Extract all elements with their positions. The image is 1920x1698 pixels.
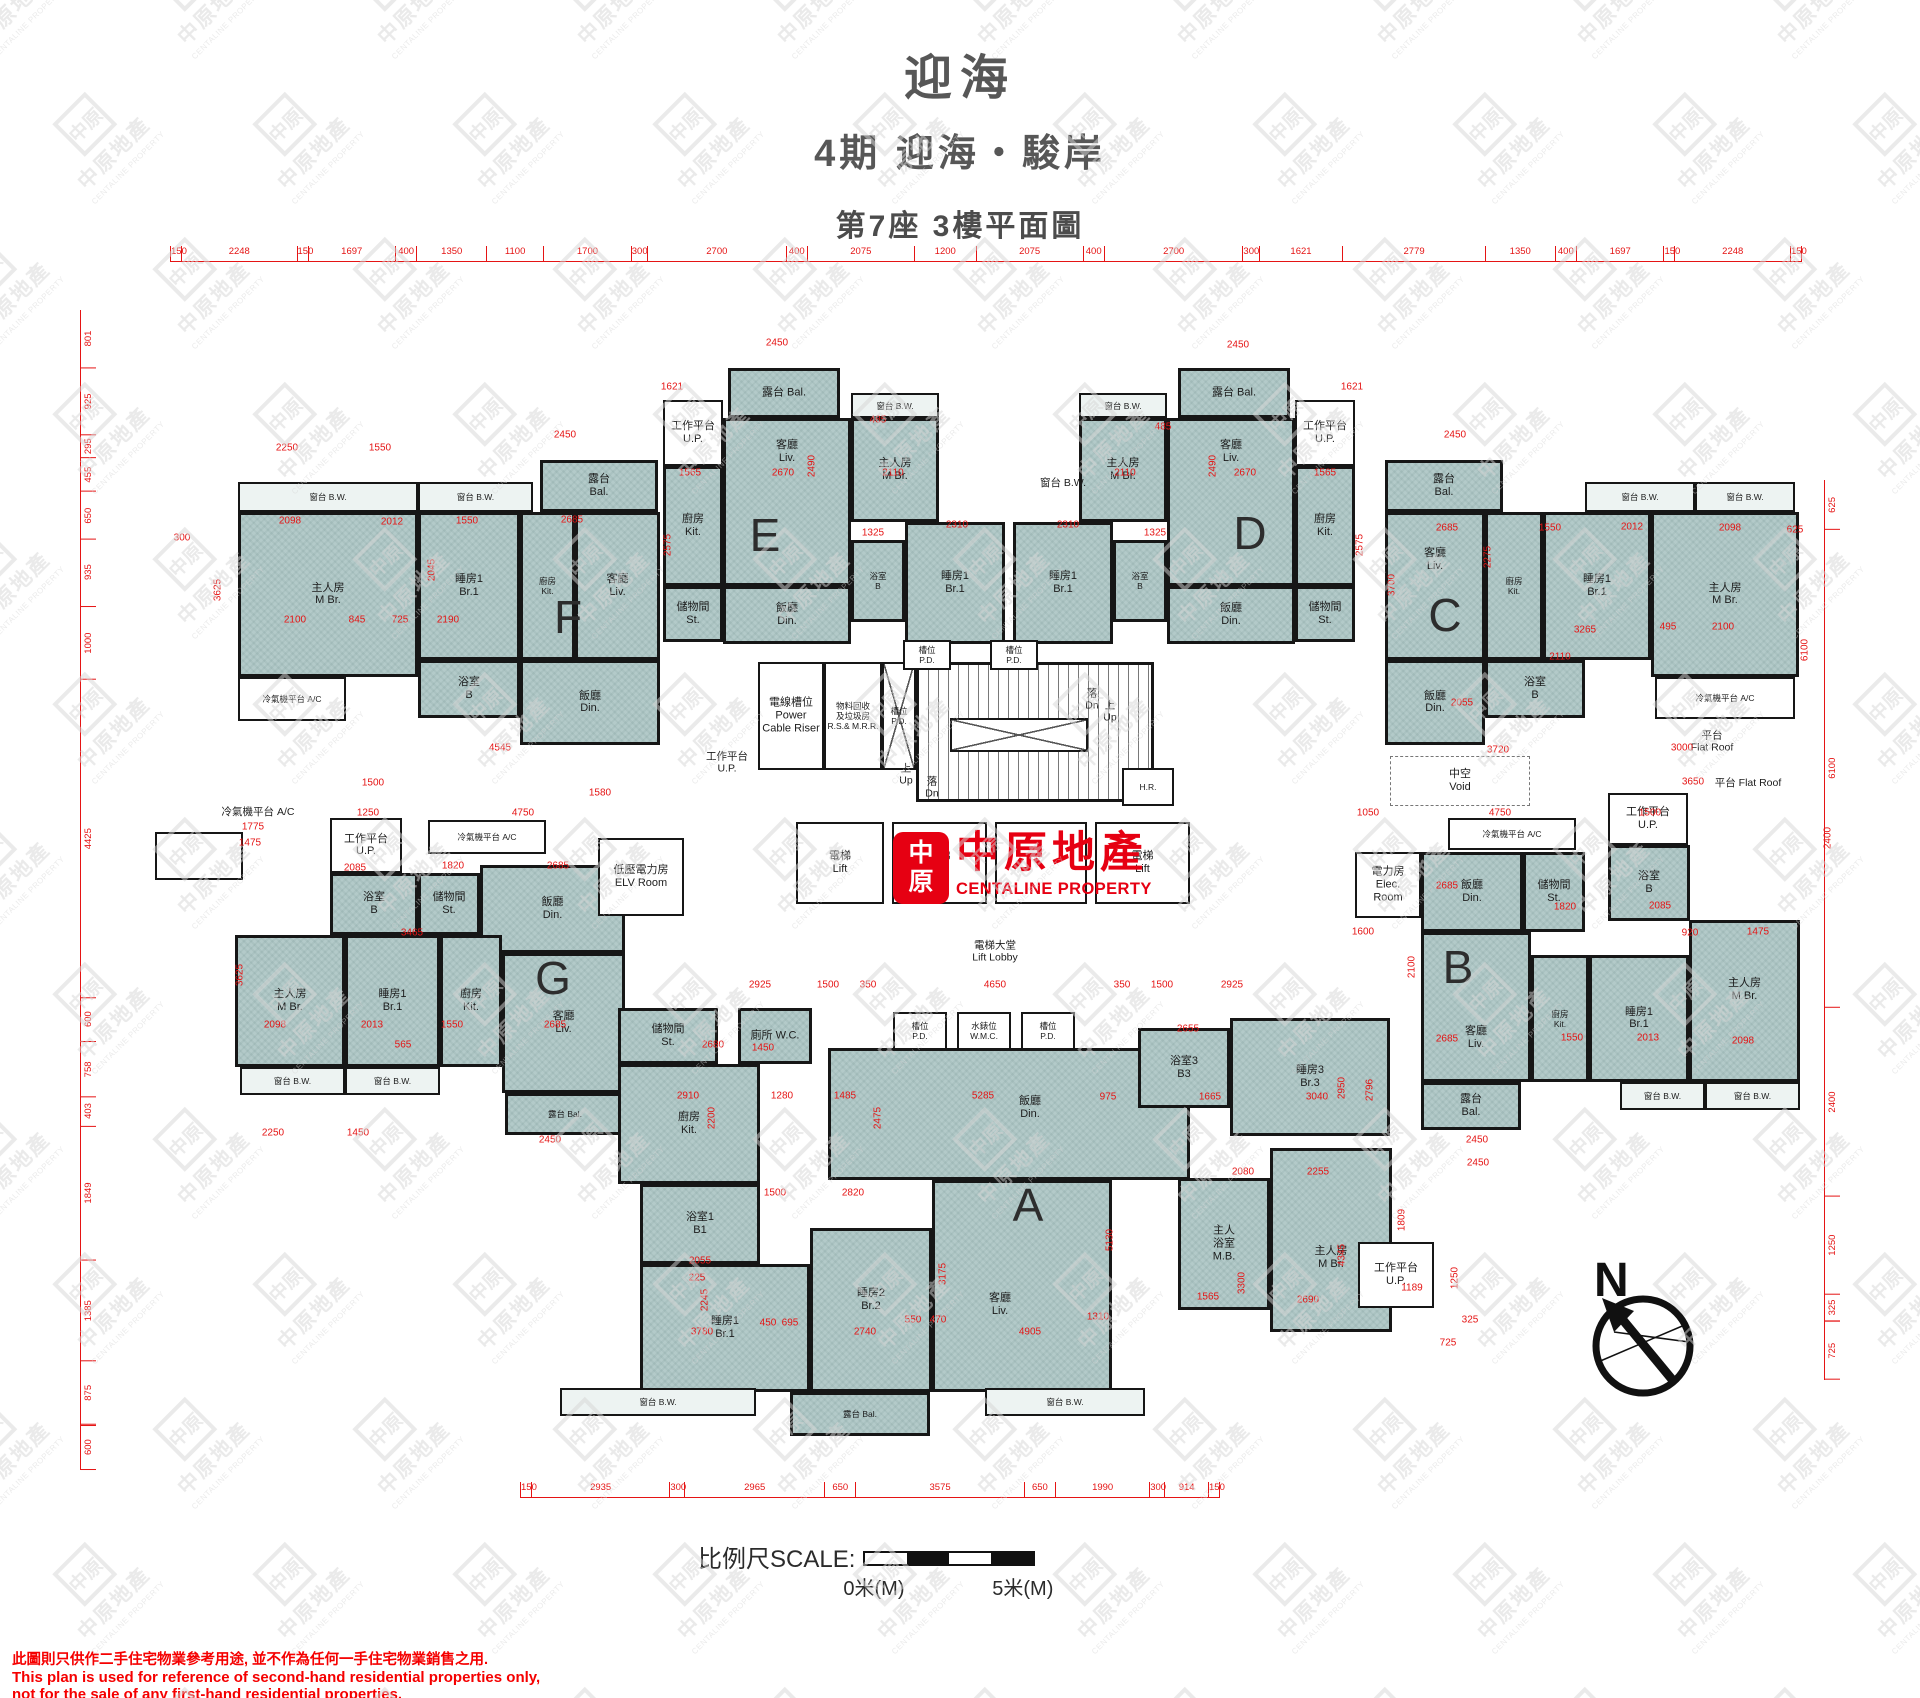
- logo-chinese-name: 中原地產: [956, 832, 1152, 875]
- watermark-logo: 中原中原地產CENTALINE PROPERTY: [12, 921, 188, 1097]
- watermark-seal-icon: 中原: [152, 1107, 217, 1172]
- dimension: 3300: [1237, 1272, 1248, 1294]
- watermark-english: CENTALINE PROPERTY: [1690, 1579, 1767, 1656]
- watermark-seal-icon: 中原: [1352, 1397, 1417, 1462]
- watermark-logo: 中原中原地產CENTALINE PROPERTY: [1312, 1356, 1488, 1532]
- plan-label: 落 Dn: [1085, 688, 1098, 713]
- room-label: 電線槽位 Power Cable Riser: [762, 697, 819, 736]
- dimension: 650: [81, 492, 96, 540]
- room-label: 中空 Void: [1449, 768, 1471, 794]
- watermark-english: CENTALINE PROPERTY: [1790, 274, 1867, 351]
- watermark-seal-icon: 中原: [1752, 1107, 1817, 1172]
- dimension: 2450: [1467, 1158, 1489, 1169]
- watermark-logo: 中原中原地產CENTALINE PROPERTY: [1712, 1646, 1888, 1698]
- room-label: 冷氣機平台 A/C: [457, 832, 516, 842]
- plan-label: 平台 Flat Roof: [1715, 777, 1782, 789]
- room-label: 睡房1 Br.1: [1625, 1006, 1653, 1032]
- watermark-logo: 中原中原地產CENTALINE PROPERTY: [1912, 1646, 1920, 1698]
- dimension: 2085: [1649, 901, 1671, 912]
- watermark-english: CENTALINE PROPERTY: [1290, 709, 1367, 786]
- dimension: 6100: [1825, 530, 1840, 1008]
- room-label: 廚房 Kit.: [1314, 513, 1336, 539]
- watermark-chinese: 中原地產: [1770, 834, 1856, 920]
- dimension: 1475: [239, 838, 261, 849]
- room-label: 浴室3 B3: [1170, 1055, 1198, 1081]
- dimension: 300: [631, 246, 647, 261]
- watermark-english: CENTALINE PROPERTY: [790, 274, 867, 351]
- watermark-logo: 中原中原地產CENTALINE PROPERTY: [1612, 1501, 1788, 1677]
- room-label: 主人房 M Br.: [274, 988, 307, 1014]
- watermark-english: CENTALINE PROPERTY: [1890, 1289, 1920, 1366]
- room-label: 主人 浴室 M.B.: [1213, 1225, 1236, 1264]
- watermark-chinese: 中原地產: [0, 254, 56, 340]
- watermark-chinese: 中原地產: [1870, 979, 1920, 1065]
- dimension: 1665: [1199, 1092, 1221, 1103]
- dimension: 150: [297, 246, 308, 261]
- unit-letter-D: D: [1233, 506, 1266, 560]
- dimension: 150: [170, 246, 181, 261]
- watermark-chinese: 中原地產: [770, 254, 856, 340]
- watermark-english: CENTALINE PROPERTY: [990, 274, 1067, 351]
- watermark-seal-icon: 中原: [1152, 1687, 1217, 1698]
- watermark-seal-icon: 中原: [452, 1542, 517, 1607]
- watermark-seal-icon: 中原: [1252, 672, 1317, 737]
- watermark-seal-icon: 中原: [752, 1687, 817, 1698]
- dimension: 4750: [1489, 808, 1511, 819]
- watermark-logo: 中原中原地產CENTALINE PROPERTY: [12, 1211, 188, 1387]
- watermark-logo: 中原中原地產CENTALINE PROPERTY: [112, 1356, 288, 1532]
- dimension: 975: [1100, 1092, 1117, 1103]
- room-label: 客廳 Liv.: [776, 439, 798, 465]
- dimension: 2200: [707, 1107, 718, 1129]
- watermark-english: CENTALINE PROPERTY: [1390, 1434, 1467, 1511]
- dimension: 3650: [1682, 777, 1704, 788]
- dimension: 4545: [489, 743, 511, 754]
- watermark-seal-icon: 中原: [52, 1542, 117, 1607]
- watermark-logo: 中原中原地產CENTALINE PROPERTY: [1112, 1356, 1288, 1532]
- dimension: 1550: [1539, 523, 1561, 534]
- room-label: 槽位 P.D.: [1039, 1021, 1056, 1041]
- watermark-logo: 中原中原地產CENTALINE PROPERTY: [312, 1356, 488, 1532]
- watermark-logo: 中原中原地產CENTALINE PROPERTY: [0, 1066, 88, 1242]
- room-label: 露台 Bal.: [548, 1109, 582, 1119]
- dimension: 3040: [1306, 1092, 1328, 1103]
- watermark-chinese: 中原地產: [1570, 254, 1656, 340]
- dimension: 300: [174, 533, 191, 544]
- disclaimer-english-2: not for the sale of any first-hand resid…: [12, 1686, 540, 1698]
- dimension: 2779: [1342, 246, 1485, 261]
- room-label: 槽位 P.D.: [911, 1021, 928, 1041]
- room-label: 廚房 Kit.: [1551, 1008, 1568, 1028]
- dimension: 1250: [1825, 1196, 1840, 1295]
- watermark-english: CENTALINE PROPERTY: [1190, 854, 1267, 931]
- watermark-seal-icon: 中原: [1552, 1687, 1617, 1698]
- watermark-chinese: 中原地產: [1170, 254, 1256, 340]
- room-label: 主人房 M Br.: [1709, 582, 1742, 608]
- dimension: 300: [669, 1482, 684, 1497]
- dimension: 300: [1242, 246, 1258, 261]
- watermark-english: CENTALINE PROPERTY: [490, 1579, 567, 1656]
- dimension: 650: [1024, 1482, 1055, 1497]
- watermark-chinese: 中原地產: [1770, 1124, 1856, 1210]
- dimension: 2490: [807, 455, 818, 477]
- watermark-logo: 中原中原地產CENTALINE PROPERTY: [1312, 1646, 1488, 1698]
- room-label: 窗台 B.W.: [274, 1076, 311, 1086]
- plan-label: 上 Up: [899, 763, 912, 788]
- dimension: 2012: [1621, 522, 1643, 533]
- dimension: 1500: [817, 980, 839, 991]
- dimension: 2100: [1407, 956, 1418, 978]
- watermark-chinese: 中原地產: [0, 544, 56, 630]
- dimension: 3700: [1387, 574, 1398, 596]
- dimension: 2255: [1307, 1167, 1329, 1178]
- dimension: 6100: [1800, 639, 1811, 661]
- room-label: 廁所 W.C.: [751, 1030, 800, 1043]
- watermark-logo: 中原中原地產CENTALINE PROPERTY: [12, 631, 188, 807]
- room-label: 飯廳 Din.: [1019, 1095, 1041, 1121]
- dimension: 1550: [369, 443, 391, 454]
- dimension: 150: [1208, 1482, 1220, 1497]
- watermark-chinese: 中原地產: [1870, 689, 1920, 775]
- watermark-chinese: 中原地產: [1870, 1559, 1920, 1645]
- dimension: 403: [81, 1097, 96, 1127]
- dimension: 5130: [1105, 1229, 1116, 1251]
- watermark-english: CENTALINE PROPERTY: [1590, 1434, 1667, 1511]
- dimension: 625: [1825, 480, 1840, 530]
- unit-letter-B: B: [1443, 940, 1474, 994]
- dimension: 2100: [284, 615, 306, 626]
- room-label: 水錶位 W.M.C.: [970, 1021, 998, 1041]
- watermark-logo: 中原中原地產CENTALINE PROPERTY: [0, 1356, 88, 1532]
- watermark-seal-icon: 中原: [752, 1107, 817, 1172]
- dimension: 1475: [1747, 927, 1769, 938]
- room-label: 浴室1 B1: [686, 1211, 714, 1237]
- dimension: 3465: [401, 928, 423, 939]
- dimension: 1809: [1397, 1209, 1408, 1231]
- dimension: 725: [392, 615, 409, 626]
- watermark-seal-icon: 中原: [1852, 1542, 1917, 1607]
- room-label: 儲物間 St.: [433, 891, 466, 917]
- watermark-chinese: 中原地產: [0, 1124, 56, 1210]
- watermark-chinese: 中原地產: [470, 1269, 556, 1355]
- room-label: 窗台 B.W.: [1046, 1397, 1083, 1407]
- dimension: 2110: [1114, 468, 1136, 479]
- room-g-ac-platform-box: [155, 832, 243, 880]
- dimension: 2685: [1436, 1034, 1458, 1045]
- dimension: 1820: [442, 861, 464, 872]
- dimension: 2925: [1221, 980, 1243, 991]
- dimension: 2100: [1712, 622, 1734, 633]
- dimension: 625: [1787, 525, 1804, 536]
- room-label: 低壓電力房 ELV Room: [614, 864, 669, 890]
- watermark-english: CENTALINE PROPERTY: [1890, 1579, 1920, 1656]
- watermark-chinese: 中原地產: [270, 1559, 356, 1645]
- watermark-seal-icon: 中原: [1252, 1542, 1317, 1607]
- scale-bar: 比例尺SCALE: 0米(M) 5米(M): [698, 1548, 1053, 1601]
- dimension: 1697: [1576, 246, 1663, 261]
- watermark-seal-icon: 中原: [1752, 0, 1817, 12]
- dimension: 2098: [264, 1020, 286, 1031]
- watermark-english: CENTALINE PROPERTY: [0, 854, 67, 931]
- watermark-seal-icon: 中原: [352, 1107, 417, 1172]
- room-label: 冷氣機平台 A/C: [1482, 829, 1541, 839]
- unit-letter-C: C: [1428, 588, 1461, 642]
- dimension: 2680: [702, 1040, 724, 1051]
- dimension: 914: [1164, 1482, 1208, 1497]
- watermark-chinese: 中原地產: [1870, 399, 1920, 485]
- dimension: 1500: [362, 778, 384, 789]
- dimension: 1550: [1561, 1033, 1583, 1044]
- dimension: 2250: [276, 443, 298, 454]
- watermark-seal-icon: 中原: [552, 1687, 617, 1698]
- dimension: 2700: [647, 246, 786, 261]
- dimension: 2075: [807, 246, 914, 261]
- watermark-english: CENTALINE PROPERTY: [190, 1144, 267, 1221]
- watermark-english: CENTALINE PROPERTY: [90, 709, 167, 786]
- watermark-logo: 中原中原地產CENTALINE PROPERTY: [1912, 1066, 1920, 1242]
- room-label: 飯廳 Din.: [776, 602, 798, 628]
- room-label: 浴室 B: [458, 676, 480, 702]
- scale-end: 5米(M): [992, 1572, 1053, 1601]
- seal-char-top: 中: [908, 839, 933, 868]
- dimension: 2245: [700, 1289, 711, 1311]
- watermark-seal-icon: 中原: [752, 0, 817, 12]
- plan-label: 冷氣機平台 A/C: [222, 806, 295, 818]
- dimension: 150: [520, 1482, 531, 1497]
- watermark-english: CENTALINE PROPERTY: [1490, 1289, 1567, 1366]
- dimension: 1550: [441, 1020, 463, 1031]
- room-label: 睡房2 Br.2: [857, 1287, 885, 1313]
- watermark-seal-icon: 中原: [1352, 1687, 1417, 1698]
- watermark-chinese: 中原地產: [1370, 254, 1456, 340]
- watermark-english: CENTALINE PROPERTY: [590, 274, 667, 351]
- dimension: 300: [1149, 1482, 1164, 1497]
- compass-north-label: N: [1594, 1254, 1629, 1307]
- dimension: 2450: [1466, 1135, 1488, 1146]
- dimension: 1565: [1197, 1292, 1219, 1303]
- room-label: 廚房 Kit.: [682, 513, 704, 539]
- watermark-chinese: 中原地產: [70, 1559, 156, 1645]
- watermark-chinese: 中原地產: [370, 1414, 456, 1500]
- dimension: 1565: [1314, 468, 1336, 479]
- watermark-seal-icon: 中原: [0, 237, 17, 302]
- watermark-seal-icon: 中原: [1652, 1542, 1717, 1607]
- dimension: 400: [786, 246, 807, 261]
- dimension: 1775: [242, 822, 264, 833]
- dimension: 600: [81, 998, 96, 1042]
- dimension: 2055: [1451, 698, 1473, 709]
- watermark-seal-icon: 中原: [0, 0, 17, 12]
- watermark-chinese: 中原地產: [1670, 399, 1756, 485]
- seal-char-bottom: 原: [908, 868, 933, 897]
- dimension: 1100: [486, 246, 543, 261]
- dimension: 3575: [855, 1482, 1023, 1497]
- dimension: 1310: [1087, 1312, 1109, 1323]
- watermark-chinese: 中原地產: [970, 254, 1056, 340]
- dimension: 455: [81, 458, 96, 492]
- room-label: 主人房 M Br.: [312, 582, 345, 608]
- watermark-english: CENTALINE PROPERTY: [1890, 999, 1920, 1076]
- dimension: 801: [81, 310, 96, 368]
- dimension: 1849: [81, 1127, 96, 1261]
- dimension: 3625: [213, 579, 224, 601]
- watermark-logo: 中原中原地產CENTALINE PROPERTY: [712, 1646, 888, 1698]
- plan-label: 平台 Flat Roof: [1691, 730, 1734, 755]
- dimension: 1621: [661, 382, 683, 393]
- room-label: 窗台 B.W.: [309, 492, 346, 502]
- watermark-chinese: 中原地產: [170, 1124, 256, 1210]
- dimension: 450: [760, 1318, 777, 1329]
- room-label: 飯廳 Din.: [542, 896, 564, 922]
- dimension: 1450: [347, 1128, 369, 1139]
- room-label: 廚房 Kit.: [678, 1111, 700, 1137]
- room-label: 工作平台 U.P.: [671, 420, 715, 446]
- room-label: 儲物間 St.: [677, 601, 710, 627]
- dimension: 2910: [677, 1091, 699, 1102]
- dimension: 935: [81, 539, 96, 607]
- dimension: 3720: [1487, 745, 1509, 756]
- unit-letter-E: E: [750, 508, 781, 562]
- dimension: 1580: [589, 788, 611, 799]
- dimension: 2450: [539, 1135, 561, 1146]
- dimension: 1600: [1352, 927, 1374, 938]
- dimension: 2700: [1104, 246, 1243, 261]
- watermark-chinese: 中原地產: [1370, 1414, 1456, 1500]
- dimension: 1485: [834, 1091, 856, 1102]
- watermark-seal-icon: 中原: [1752, 817, 1817, 882]
- watermark-seal-icon: 中原: [0, 1397, 17, 1462]
- watermark-chinese: 中原地產: [170, 254, 256, 340]
- dimension: 1697: [308, 246, 395, 261]
- watermark-english: CENTALINE PROPERTY: [90, 419, 167, 496]
- compass-needle: [1618, 1314, 1675, 1383]
- logo-english-name: CENTALINE PROPERTY: [956, 880, 1152, 899]
- dimension: 2740: [854, 1327, 876, 1338]
- watermark-logo: 中原中原地產CENTALINE PROPERTY: [12, 341, 188, 517]
- room-label: 露台 Bal.: [1433, 473, 1455, 499]
- room-label: 浴室 B: [1524, 676, 1546, 702]
- dimension: 400: [1083, 246, 1104, 261]
- dimension: 2250: [262, 1128, 284, 1139]
- room-lift-shaft: [950, 718, 1088, 752]
- watermark-chinese: 中原地產: [370, 254, 456, 340]
- watermark-english: CENTALINE PROPERTY: [0, 1144, 67, 1221]
- room-label: 睡房1 Br.1: [1583, 573, 1611, 599]
- watermark-seal-icon: 中原: [0, 527, 17, 592]
- watermark-seal-icon: 中原: [1852, 962, 1917, 1027]
- dimension: 758: [81, 1042, 96, 1097]
- dimension: 875: [81, 1361, 96, 1425]
- watermark-seal-icon: 中原: [1552, 1107, 1617, 1172]
- phase-name: 4期 迎海・駿岸: [0, 122, 1920, 177]
- dimension: 3000: [1671, 743, 1693, 754]
- room-label: 睡房3 Br.3: [1296, 1064, 1324, 1090]
- room-label: 露台 Bal.: [1212, 387, 1256, 400]
- watermark-seal-icon: 中原: [1452, 1252, 1517, 1317]
- watermark-english: CENTALINE PROPERTY: [1390, 274, 1467, 351]
- room-label: 睡房1 Br.1: [941, 570, 969, 596]
- room-label: 浴室 B: [869, 571, 886, 591]
- dimension: 2475: [873, 1107, 884, 1129]
- dimension: 1050: [1357, 808, 1379, 819]
- dimension: 2190: [437, 615, 459, 626]
- dimension: 2248: [1674, 246, 1790, 261]
- room-label: 浴室 B: [1131, 571, 1148, 591]
- north-compass: N: [1568, 1252, 1708, 1402]
- dimension: 2450: [1444, 430, 1466, 441]
- watermark-seal-icon: 中原: [552, 0, 617, 12]
- room-label: 儲物間 St.: [1309, 601, 1342, 627]
- room-label: 窗台 B.W.: [876, 400, 913, 410]
- compass-chord-2: [1614, 1332, 1689, 1342]
- dimension: 2685: [544, 1020, 566, 1031]
- dimension: 2685: [1436, 523, 1458, 534]
- dimension: 1550: [456, 516, 478, 527]
- room-label: 飯廳 Din.: [1220, 602, 1242, 628]
- dimension: 1621: [1341, 382, 1363, 393]
- unit-letter-G: G: [535, 951, 571, 1005]
- watermark-chinese: 中原地產: [270, 1269, 356, 1355]
- dimension: 350: [860, 980, 877, 991]
- dimension: 2655: [1177, 1024, 1199, 1035]
- dimension: 485: [1155, 422, 1172, 433]
- dimension: 695: [782, 1318, 799, 1329]
- room-label: 窗台 B.W.: [1644, 1091, 1681, 1101]
- watermark-english: CENTALINE PROPERTY: [0, 564, 67, 641]
- watermark-english: CENTALINE PROPERTY: [390, 274, 467, 351]
- watermark-seal-icon: 中原: [952, 1687, 1017, 1698]
- watermark-logo: 中原中原地產CENTALINE PROPERTY: [1212, 1501, 1388, 1677]
- room-label: 工作平台 U.P.: [1303, 420, 1347, 446]
- watermark-chinese: 中原地產: [1670, 1559, 1756, 1645]
- watermark-english: CENTALINE PROPERTY: [1890, 709, 1920, 786]
- dimension: 2310: [946, 520, 968, 531]
- dimension: 2055: [689, 1256, 711, 1267]
- dimension: 1565: [679, 468, 701, 479]
- room-label: 飯廳 Din.: [1461, 879, 1483, 905]
- scale-label: 比例尺SCALE:: [698, 1548, 855, 1572]
- watermark-logo: 中原中原地產CENTALINE PROPERTY: [0, 776, 88, 952]
- dimension: 470: [930, 1315, 947, 1326]
- watermark-chinese: 中原地產: [1470, 1269, 1556, 1355]
- dimension: 5285: [972, 1091, 994, 1102]
- dimension: 600: [81, 1425, 96, 1470]
- dimension: 1325: [862, 528, 884, 539]
- room-label: 客廳 Liv.: [989, 1292, 1011, 1318]
- dimension: 1500: [764, 1188, 786, 1199]
- room-label: 廚房 Kit.: [460, 988, 482, 1014]
- watermark-logo: 中原中原地產CENTALINE PROPERTY: [1912, 486, 1920, 662]
- dimension: 2310: [1057, 520, 1079, 531]
- dimension: 845: [349, 615, 366, 626]
- dimension: 400: [1555, 246, 1576, 261]
- dimension: 295: [81, 436, 96, 458]
- dimension: 225: [689, 1273, 706, 1284]
- room-label: 主人房 M Br.: [1728, 977, 1761, 1003]
- watermark-chinese: 中原地產: [1770, 254, 1856, 340]
- plan-label: 窗台 B.W.: [1040, 477, 1086, 489]
- watermark-seal-icon: 中原: [252, 1252, 317, 1317]
- centaline-logo: 中 原 中原地產 CENTALINE PROPERTY: [893, 832, 1152, 904]
- watermark-logo: 中原中原地產CENTALINE PROPERTY: [212, 1211, 388, 1387]
- scale-bar-ends: 0米(M) 5米(M): [843, 1572, 1053, 1601]
- disclaimer: 此圖則只供作二手住宅物業參考用途, 並不作為任何一手住宅物業銷售之用. This…: [12, 1648, 540, 1698]
- room-label: 窗台 B.W.: [457, 492, 494, 502]
- watermark-seal-icon: 中原: [152, 1397, 217, 1462]
- dimension: 1700: [543, 246, 631, 261]
- watermark-logo: 中原中原地產CENTALINE PROPERTY: [1412, 1501, 1588, 1677]
- tower-floor-label: 第7座 3樓平面圖: [0, 201, 1920, 245]
